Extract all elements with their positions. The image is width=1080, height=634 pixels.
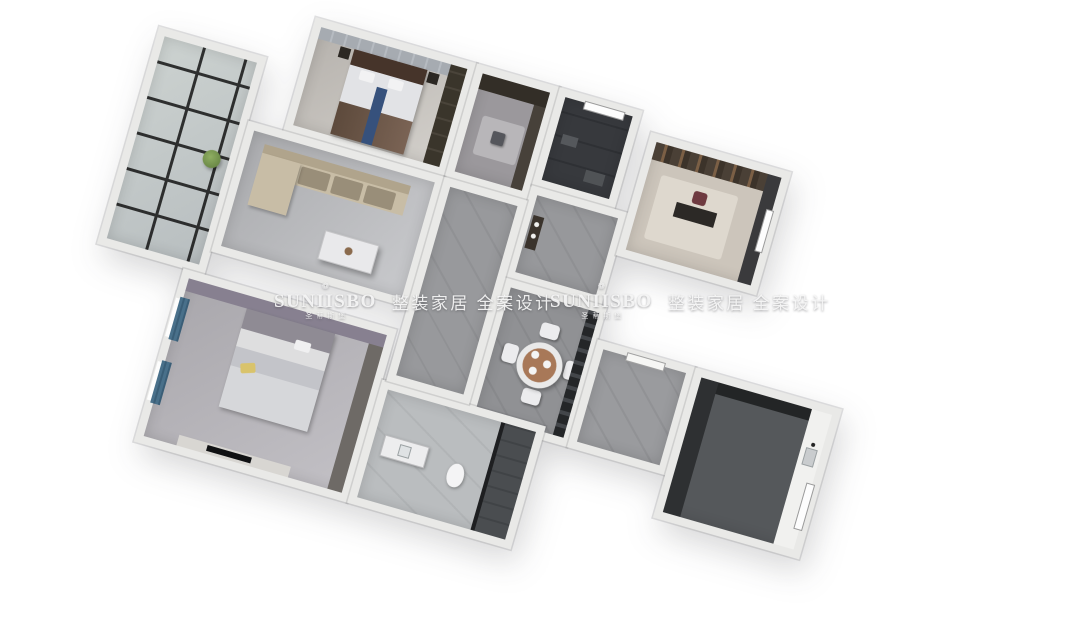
watermark-right: ❁ SUNIISBO 圣蒂斯堡 整装家居 全案设计 [550, 282, 831, 320]
brand-tagline: 整装家居 全案设计 [668, 289, 831, 314]
sofa-cushion [363, 185, 397, 211]
crown-icon: ❁ [322, 282, 330, 291]
pillow [293, 339, 311, 353]
brand-tagline: 整装家居 全案设计 [392, 289, 555, 314]
dining-table-top [518, 344, 560, 386]
kitchen-upper-cabinet [715, 382, 813, 421]
nightstand [338, 46, 352, 60]
washbasin [560, 134, 578, 148]
room-study [616, 132, 792, 295]
sofa-cushion [330, 176, 364, 202]
nightstand [426, 72, 440, 86]
brand-logo: ❁ SUNIISBO 圣蒂斯堡 [550, 282, 653, 320]
brand-name-chinese: 圣蒂斯堡 [301, 313, 349, 320]
watermark-left: ❁ SUNIISBO 圣蒂斯堡 整装家居 全案设计 [274, 282, 555, 320]
kitchen-counter-white [773, 409, 832, 549]
pillow [387, 78, 404, 92]
pillow [358, 70, 375, 84]
wardrobe [478, 73, 550, 108]
entry-door [625, 352, 666, 372]
washbasin [397, 444, 412, 459]
brand-name: SUNIISBO [274, 292, 377, 311]
toilet [444, 462, 467, 490]
yellow-pillow [240, 363, 255, 374]
dining-chair [520, 387, 542, 407]
brand-name: SUNIISBO [550, 292, 653, 311]
brand-logo: ❁ SUNIISBO 圣蒂斯堡 [274, 282, 377, 320]
dining-chair [539, 322, 561, 342]
sofa-chaise [247, 153, 300, 216]
dining-table [511, 337, 568, 394]
brand-name-chinese: 圣蒂斯堡 [577, 313, 625, 320]
crown-icon: ❁ [598, 282, 606, 291]
double-bed [330, 49, 427, 155]
console-table [524, 215, 544, 251]
vanity [379, 435, 429, 469]
sofa-cushion [297, 166, 331, 192]
toilet [583, 170, 606, 187]
window [583, 101, 626, 121]
